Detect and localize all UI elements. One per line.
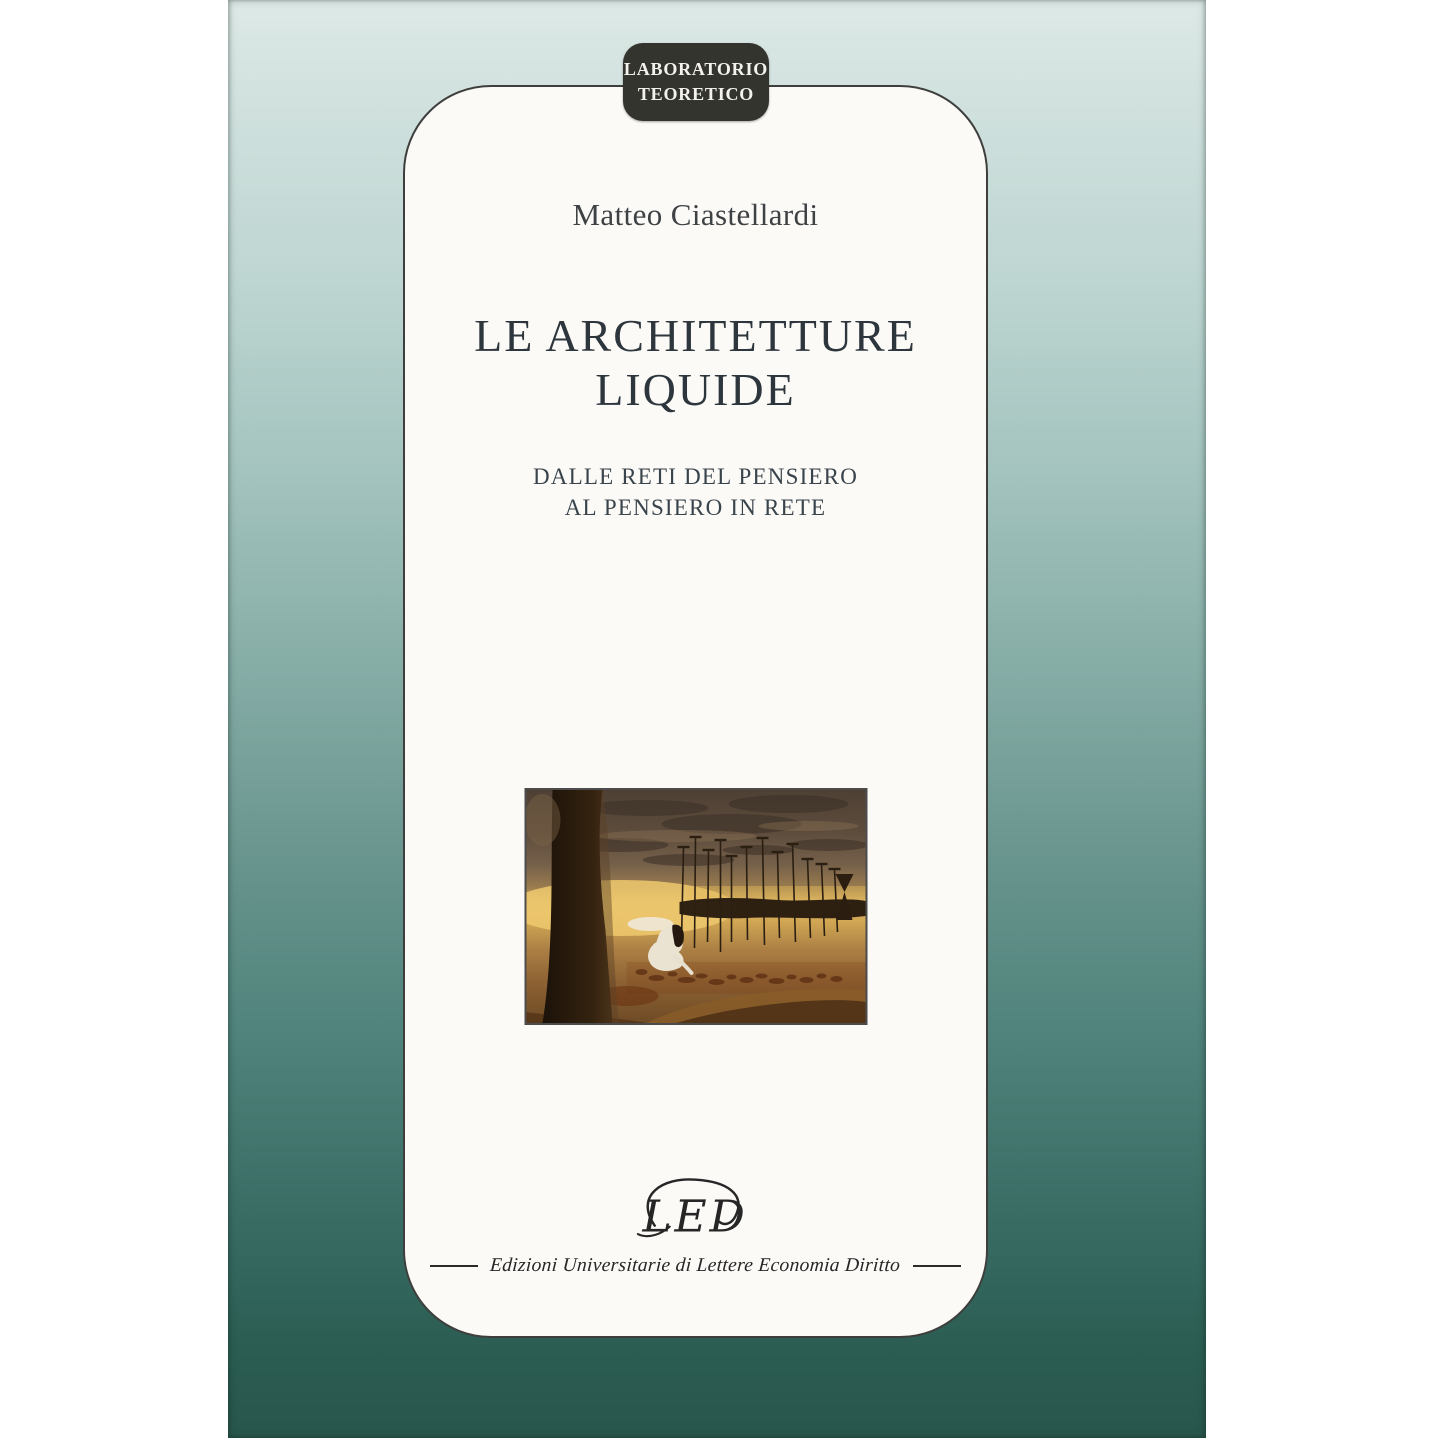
series-badge-line2: TEORETICO bbox=[638, 82, 754, 107]
publisher-block: LED Edizioni Universitarie di Lettere Ec… bbox=[405, 1173, 986, 1277]
subtitle-line1: DALLE RETI DEL PENSIERO bbox=[405, 461, 986, 492]
book-subtitle: DALLE RETI DEL PENSIERO AL PENSIERO IN R… bbox=[405, 461, 986, 523]
title-line2: LIQUIDE bbox=[405, 363, 986, 417]
tagline-rule-left bbox=[430, 1265, 478, 1267]
cover-artwork bbox=[524, 788, 867, 1025]
publisher-tagline-row: Edizioni Universitarie di Lettere Econom… bbox=[405, 1255, 986, 1277]
series-badge: LABORATORIO TEORETICO bbox=[623, 43, 769, 121]
cover-artwork-image bbox=[526, 790, 865, 1023]
subtitle-line2: AL PENSIERO IN RETE bbox=[405, 492, 986, 523]
photo-background: LABORATORIO TEORETICO Matteo Ciastellard… bbox=[0, 0, 1438, 1438]
author-name: Matteo Ciastellardi bbox=[405, 195, 986, 235]
title-line1: LE ARCHITETTURE bbox=[405, 309, 986, 363]
publisher-tagline: Edizioni Universitarie di Lettere Econom… bbox=[490, 1255, 902, 1277]
led-logo-text: LED bbox=[641, 1191, 747, 1242]
series-badge-line1: LABORATORIO bbox=[624, 57, 768, 82]
led-logo: LED bbox=[621, 1173, 771, 1253]
tagline-rule-right bbox=[913, 1265, 961, 1267]
book-title: LE ARCHITETTURE LIQUIDE bbox=[405, 309, 986, 417]
book-cover: LABORATORIO TEORETICO Matteo Ciastellard… bbox=[228, 0, 1206, 1438]
cover-panel: Matteo Ciastellardi LE ARCHITETTURE LIQU… bbox=[403, 85, 988, 1338]
